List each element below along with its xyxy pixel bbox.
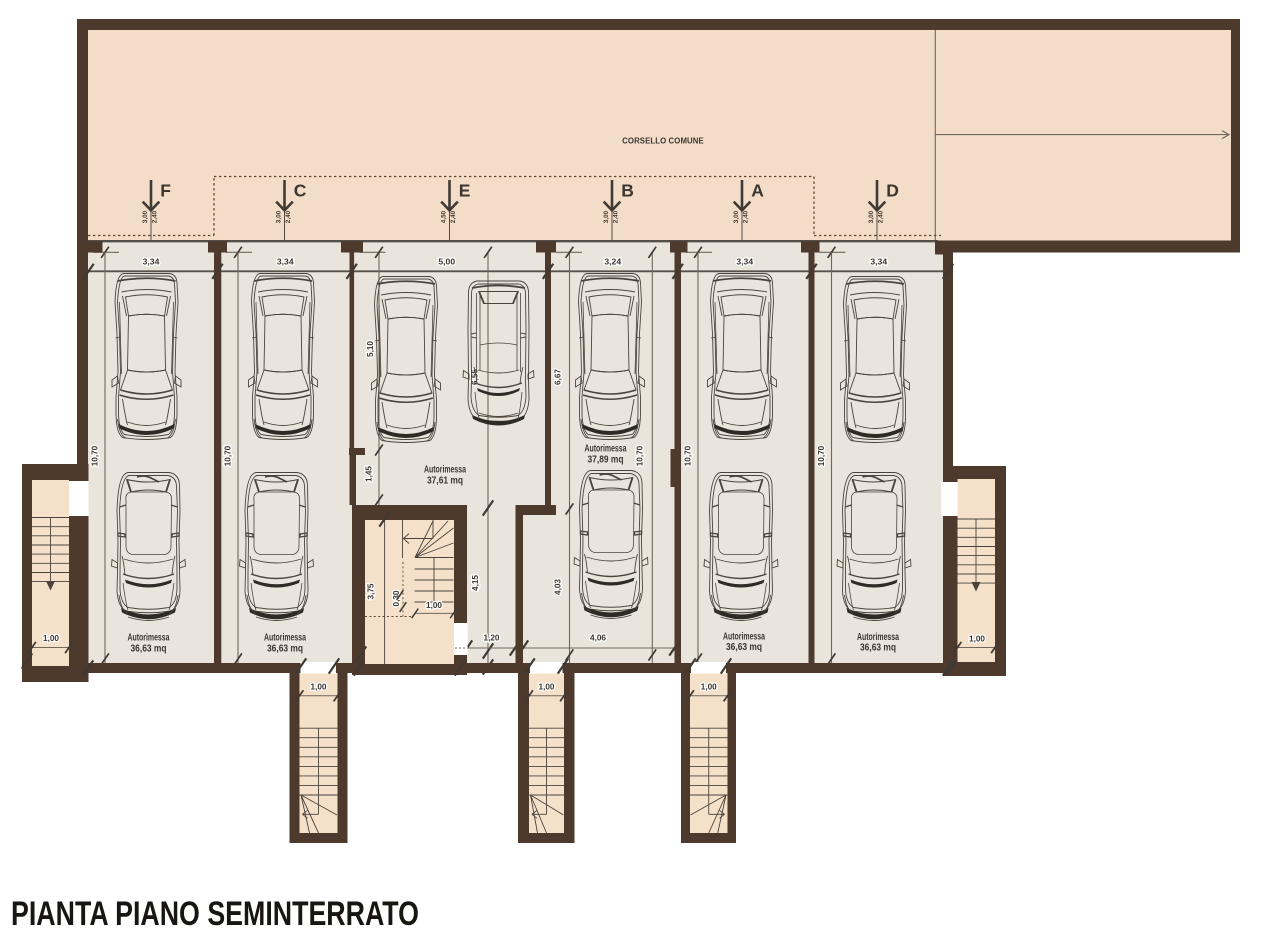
svg-text:1,00: 1,00 xyxy=(701,683,717,692)
svg-text:10,70: 10,70 xyxy=(684,445,693,466)
svg-text:3,34: 3,34 xyxy=(143,256,160,266)
svg-text:3,00: 3,00 xyxy=(275,210,282,223)
svg-text:2,40: 2,40 xyxy=(742,210,749,223)
svg-text:36,63 mq: 36,63 mq xyxy=(860,643,896,654)
svg-text:1,00: 1,00 xyxy=(43,634,59,643)
svg-text:10,70: 10,70 xyxy=(224,445,233,466)
svg-text:F: F xyxy=(160,181,171,201)
svg-text:1,20: 1,20 xyxy=(484,633,500,642)
svg-text:Autorimessa: Autorimessa xyxy=(585,443,627,454)
svg-text:E: E xyxy=(459,181,471,201)
svg-text:5,10: 5,10 xyxy=(366,341,375,357)
svg-text:CORSELLO COMUNE: CORSELLO COMUNE xyxy=(622,136,704,145)
svg-text:B: B xyxy=(621,181,634,201)
svg-text:4,06: 4,06 xyxy=(590,633,606,642)
svg-text:2,40: 2,40 xyxy=(877,210,884,223)
svg-text:3,00: 3,00 xyxy=(603,210,610,223)
svg-text:2,40: 2,40 xyxy=(450,210,457,223)
svg-text:1,00: 1,00 xyxy=(311,683,327,692)
svg-text:5,00: 5,00 xyxy=(438,256,455,266)
svg-text:3,00: 3,00 xyxy=(868,210,875,223)
svg-text:10,70: 10,70 xyxy=(91,445,100,466)
svg-text:4,50: 4,50 xyxy=(440,210,447,223)
svg-text:3,34: 3,34 xyxy=(736,256,753,266)
svg-text:3,00: 3,00 xyxy=(142,210,149,223)
svg-text:2,40: 2,40 xyxy=(612,210,619,223)
svg-text:37,89 mq: 37,89 mq xyxy=(588,455,624,466)
svg-text:3,34: 3,34 xyxy=(277,256,294,266)
svg-text:36,63 mq: 36,63 mq xyxy=(726,642,762,653)
svg-text:36,63 mq: 36,63 mq xyxy=(131,644,167,655)
svg-text:A: A xyxy=(751,181,764,201)
svg-text:0,30: 0,30 xyxy=(392,590,401,606)
svg-text:10,70: 10,70 xyxy=(636,445,645,466)
svg-text:6,67: 6,67 xyxy=(554,369,563,385)
svg-text:Autorimessa: Autorimessa xyxy=(723,631,765,642)
svg-text:10,70: 10,70 xyxy=(817,445,826,466)
svg-text:3,75: 3,75 xyxy=(367,583,376,599)
svg-text:Autorimessa: Autorimessa xyxy=(264,632,306,643)
svg-text:3,00: 3,00 xyxy=(733,210,740,223)
svg-text:Autorimessa: Autorimessa xyxy=(857,632,899,643)
svg-text:1,00: 1,00 xyxy=(426,601,442,610)
svg-text:2,40: 2,40 xyxy=(285,210,292,223)
svg-text:Autorimessa: Autorimessa xyxy=(424,464,466,475)
svg-text:1,45: 1,45 xyxy=(365,466,374,482)
svg-text:Autorimessa: Autorimessa xyxy=(128,632,170,643)
svg-text:3,34: 3,34 xyxy=(870,256,887,266)
svg-text:D: D xyxy=(886,181,899,201)
svg-text:1,00: 1,00 xyxy=(539,683,555,692)
svg-text:PIANTA PIANO SEMINTERRATO: PIANTA PIANO SEMINTERRATO xyxy=(11,895,419,933)
svg-text:37,61 mq: 37,61 mq xyxy=(427,476,463,487)
svg-text:4,03: 4,03 xyxy=(554,579,563,595)
svg-text:C: C xyxy=(294,181,307,201)
svg-text:4,15: 4,15 xyxy=(471,575,480,591)
svg-text:2,40: 2,40 xyxy=(151,210,158,223)
svg-text:1,00: 1,00 xyxy=(969,635,985,644)
svg-text:3,24: 3,24 xyxy=(604,256,621,266)
svg-text:36,63 mq: 36,63 mq xyxy=(267,644,303,655)
